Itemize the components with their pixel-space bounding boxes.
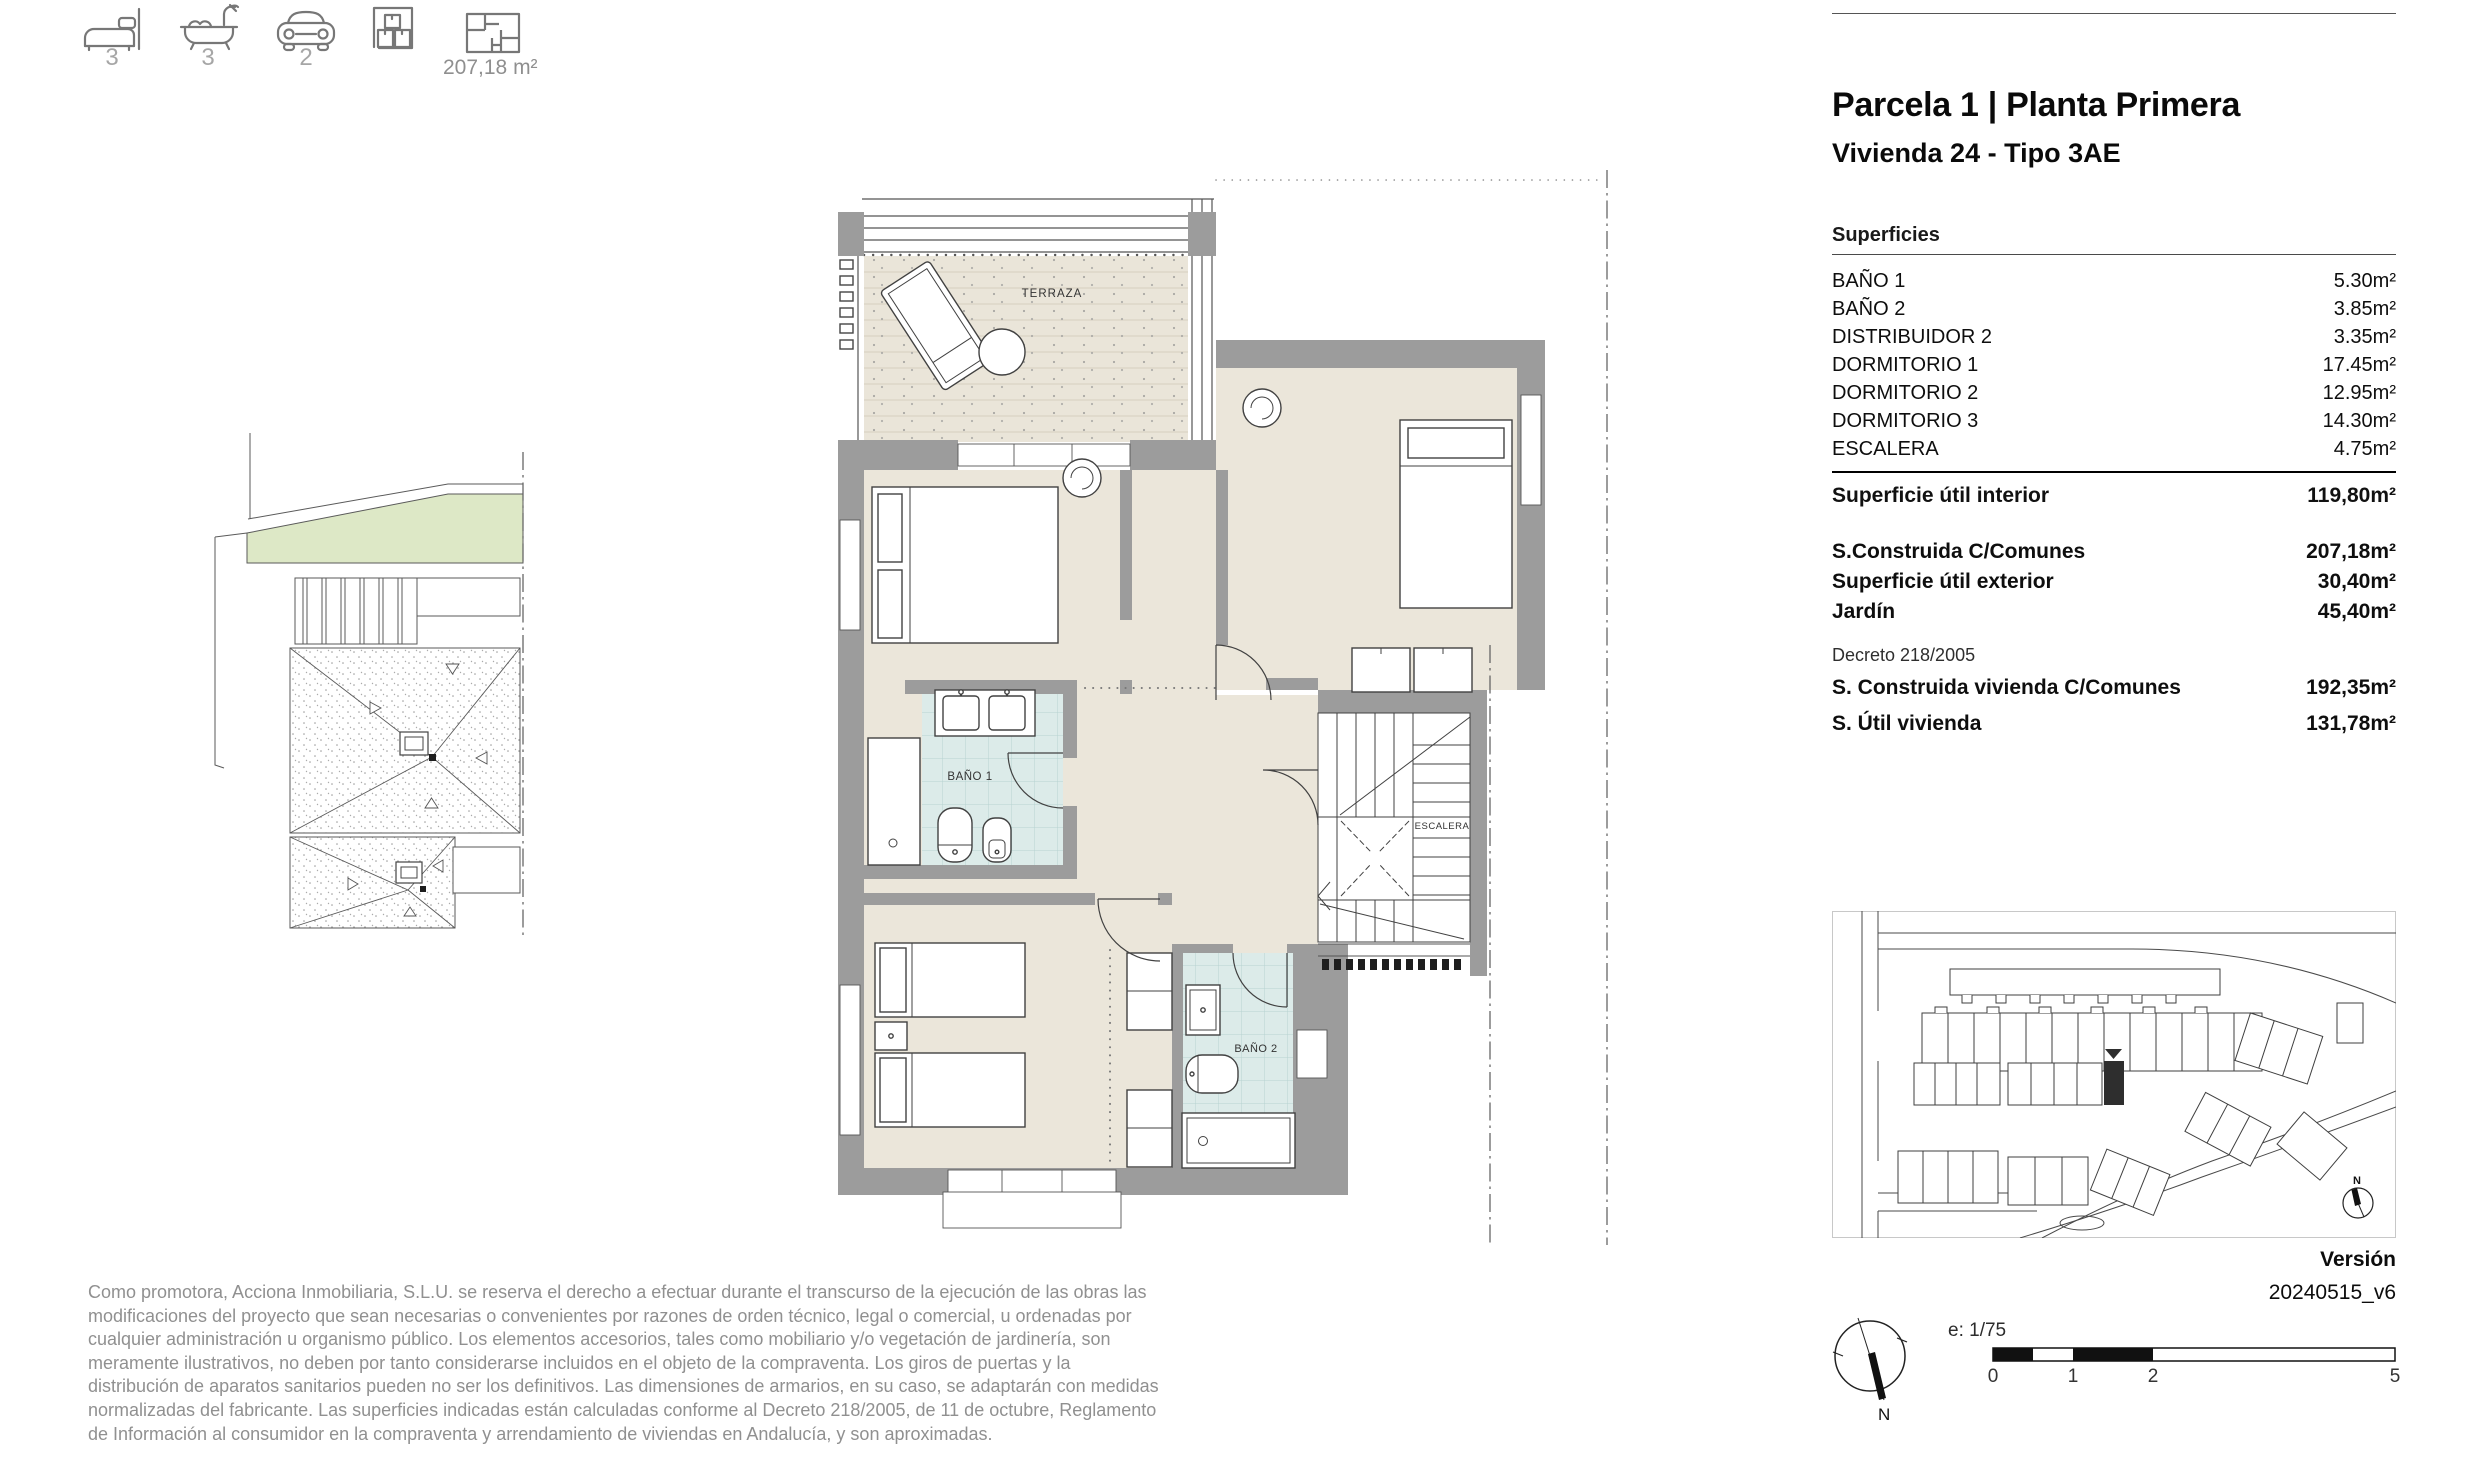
room-label: DORMITORIO 1 bbox=[1832, 354, 1978, 382]
table-row: DISTRIBUIDOR 2 3.35m² bbox=[1832, 326, 2396, 354]
adjacent-roof-plan bbox=[215, 433, 523, 935]
bath2-label: BAÑO 2 bbox=[1234, 1042, 1277, 1055]
parking-count: 2 bbox=[276, 44, 336, 72]
page-title: Parcela 1 | Planta Primera bbox=[1832, 86, 2396, 125]
scale-tick: 0 bbox=[1988, 1366, 1998, 1387]
totals-table: S.Construida C/Comunes 207,18m² Superfic… bbox=[1832, 540, 2396, 630]
table-row: S.Construida C/Comunes 207,18m² bbox=[1832, 540, 2396, 570]
room-label: DORMITORIO 3 bbox=[1832, 410, 1978, 438]
decreto-row-value: 192,35m² bbox=[2306, 676, 2396, 712]
scale-bar: 0 1 2 5 bbox=[1988, 1342, 2408, 1399]
scale-tick: 5 bbox=[2390, 1366, 2401, 1387]
surfaces-table: BAÑO 1 5.30m² BAÑO 2 3.85m² DISTRIBUIDOR… bbox=[1832, 270, 2396, 473]
roof-upper bbox=[290, 648, 520, 833]
compass-n-label: N bbox=[1878, 1405, 1890, 1424]
floorplan-sheet: 3 3 2 bbox=[0, 0, 2482, 1475]
room-label: BAÑO 2 bbox=[1832, 298, 1905, 326]
table-row: Jardín 45,40m² bbox=[1832, 600, 2396, 630]
total-label: Superficie útil exterior bbox=[1832, 570, 2054, 600]
table-row: DORMITORIO 3 14.30m² bbox=[1832, 410, 2396, 438]
decreto-row-label: S. Construida vivienda C/Comunes bbox=[1832, 676, 2181, 712]
interior-total-row: Superficie útil interior 119,80m² bbox=[1832, 484, 2396, 508]
version-label: Versión bbox=[2032, 1248, 2396, 1272]
room-label: ESCALERA bbox=[1832, 438, 1939, 466]
bathrooms-count: 3 bbox=[178, 44, 238, 72]
table-row: ESCALERA 4.75m² bbox=[1832, 438, 2396, 466]
disclaimer-text: Como promotora, Acciona Inmobiliaria, S.… bbox=[88, 1281, 1166, 1446]
bedrooms-count: 3 bbox=[82, 44, 142, 72]
scale-label: e: 1/75 bbox=[1948, 1320, 2006, 1342]
total-label: Jardín bbox=[1832, 600, 1895, 630]
site-map: N bbox=[1832, 911, 2396, 1243]
interior-total-value: 119,80m² bbox=[2307, 484, 2396, 508]
room-value: 3.35m² bbox=[2334, 326, 2396, 354]
decreto-label: Decreto 218/2005 bbox=[1832, 645, 2396, 666]
room-value: 14.30m² bbox=[2323, 410, 2396, 438]
interior-total-label: Superficie útil interior bbox=[1832, 484, 2049, 508]
garden-strip bbox=[247, 494, 523, 563]
version-value: 20240515_v6 bbox=[2032, 1281, 2396, 1305]
table-row: BAÑO 1 5.30m² bbox=[1832, 270, 2396, 298]
total-value: 45,40m² bbox=[2318, 600, 2396, 630]
built-area-label: 207,18 m² bbox=[443, 56, 538, 80]
total-value: 207,18m² bbox=[2306, 540, 2396, 570]
room-value: 17.45m² bbox=[2323, 354, 2396, 382]
table-row: BAÑO 2 3.85m² bbox=[1832, 298, 2396, 326]
table-row: Superficie útil exterior 30,40m² bbox=[1832, 570, 2396, 600]
room-label: DORMITORIO 2 bbox=[1832, 382, 1978, 410]
scale-tick: 1 bbox=[2068, 1366, 2079, 1387]
stair-label: ESCALERA bbox=[1415, 821, 1470, 832]
scale-tick: 2 bbox=[2148, 1366, 2159, 1387]
room-value: 4.75m² bbox=[2334, 438, 2396, 466]
page-subtitle: Vivienda 24 - Tipo 3AE bbox=[1832, 138, 2396, 169]
table-row: DORMITORIO 1 17.45m² bbox=[1832, 354, 2396, 382]
site-compass-n-label: N bbox=[2353, 1175, 2361, 1187]
room-value: 12.95m² bbox=[2323, 382, 2396, 410]
storage-icon bbox=[366, 2, 420, 59]
decreto-row-label: S. Útil vivienda bbox=[1832, 712, 1981, 748]
roof-lower bbox=[290, 837, 520, 928]
unit-plan: ESCALERA BAÑO 1 bbox=[838, 170, 1607, 1245]
room-value: 3.85m² bbox=[2334, 298, 2396, 326]
floor-plan: ESCALERA BAÑO 1 bbox=[200, 120, 1620, 1275]
room-label: BAÑO 1 bbox=[1832, 270, 1905, 298]
table-row: S. Útil vivienda 131,78m² bbox=[1832, 712, 2396, 748]
floorplan-icon bbox=[465, 12, 523, 61]
total-value: 30,40m² bbox=[2318, 570, 2396, 600]
table-row: S. Construida vivienda C/Comunes 192,35m… bbox=[1832, 676, 2396, 712]
table-row: DORMITORIO 2 12.95m² bbox=[1832, 382, 2396, 410]
surfaces-heading: Superficies bbox=[1832, 224, 2396, 255]
compass-icon: N bbox=[1826, 1308, 1926, 1438]
room-value: 5.30m² bbox=[2334, 270, 2396, 298]
total-label: S.Construida C/Comunes bbox=[1832, 540, 2085, 570]
panel-top-rule bbox=[1832, 13, 2396, 14]
bath1-label: BAÑO 1 bbox=[947, 770, 992, 783]
room-label: DISTRIBUIDOR 2 bbox=[1832, 326, 1992, 354]
terrace-label: TERRAZA bbox=[1022, 288, 1083, 300]
decreto-row-value: 131,78m² bbox=[2306, 712, 2396, 748]
terrace-trellis bbox=[840, 260, 853, 349]
decreto-table: S. Construida vivienda C/Comunes 192,35m… bbox=[1832, 676, 2396, 748]
roof-pergola bbox=[295, 578, 520, 644]
